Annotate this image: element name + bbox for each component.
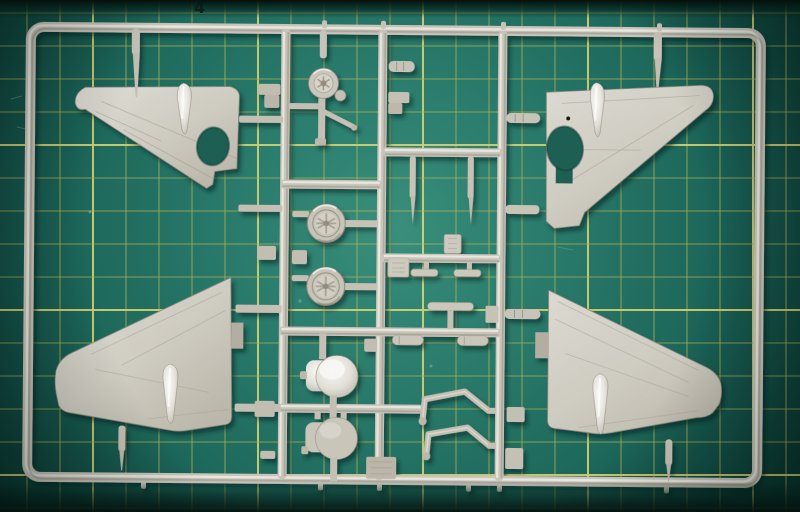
sprue-photo: 4 [0, 0, 800, 512]
photo-canvas: 4 [0, 0, 800, 512]
photo-vignette [0, 0, 800, 512]
